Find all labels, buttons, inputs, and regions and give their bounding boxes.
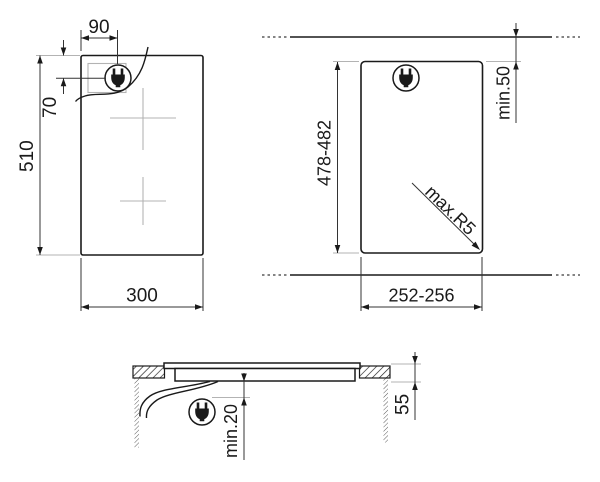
cabinet-side-left bbox=[135, 379, 140, 448]
dimension-cutout-length: 478-482 bbox=[315, 62, 360, 254]
dimension-label: 55 bbox=[393, 394, 414, 415]
dimension-label: 90 bbox=[88, 17, 109, 38]
installation-diagram: 90 70 510 300 bbox=[0, 0, 600, 482]
counter-section-right bbox=[360, 366, 391, 378]
dimension-label: min.20 bbox=[221, 404, 241, 458]
power-plug-icon bbox=[393, 65, 419, 91]
dimension-label: min.50 bbox=[494, 66, 514, 120]
dimension-label: 300 bbox=[126, 286, 158, 307]
dimension-hob-width: 300 bbox=[81, 258, 203, 311]
section-view: min.20 55 bbox=[133, 352, 421, 460]
plan-view: 90 70 510 300 bbox=[17, 17, 203, 311]
power-plug-icon bbox=[189, 399, 215, 425]
dimension-min-rear-clearance: min.50 bbox=[486, 23, 521, 123]
hob-glass bbox=[164, 363, 360, 369]
dimension-hob-height: 55 bbox=[391, 352, 421, 420]
cabinet-side-right bbox=[384, 379, 389, 443]
cutout-view: 478-482 min.50 max.R5 252-256 bbox=[262, 23, 580, 311]
counter-section-left bbox=[133, 366, 165, 378]
power-plug-icon bbox=[105, 65, 131, 91]
dimension-label: 252-256 bbox=[388, 286, 454, 306]
dimension-hob-depth: 510 bbox=[17, 56, 43, 256]
dimension-label: 70 bbox=[40, 97, 61, 118]
dimension-label: 510 bbox=[17, 140, 38, 172]
dimension-cutout-width: 252-256 bbox=[361, 257, 482, 311]
hob-body bbox=[175, 369, 355, 382]
dimension-min-bottom-clearance: min.20 bbox=[212, 373, 250, 460]
dimension-label: 478-482 bbox=[315, 120, 335, 186]
hob-outline bbox=[81, 56, 203, 256]
